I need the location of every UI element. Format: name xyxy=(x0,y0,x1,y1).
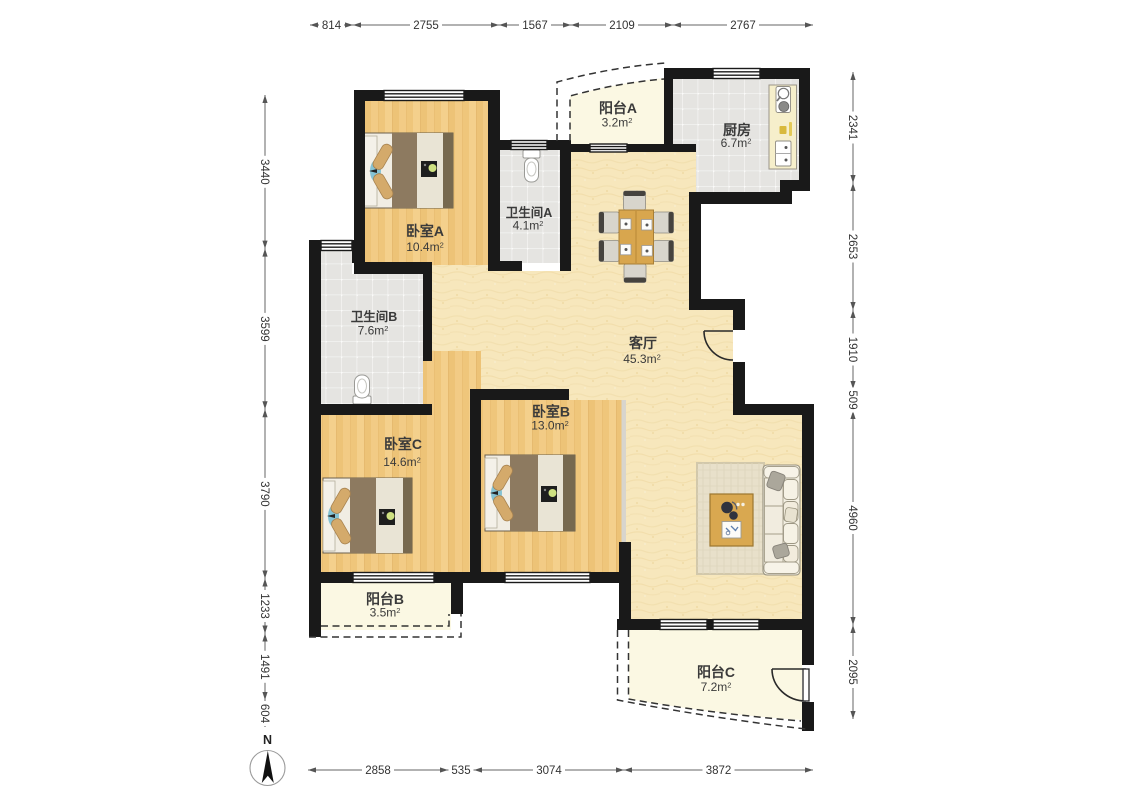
svg-text:535: 535 xyxy=(451,765,470,777)
svg-text:45.3m2: 45.3m2 xyxy=(623,352,661,366)
svg-text:2341: 2341 xyxy=(846,115,858,141)
svg-text:509: 509 xyxy=(846,390,858,409)
svg-text:13.0m2: 13.0m2 xyxy=(531,419,569,433)
svg-text:6.7m2: 6.7m2 xyxy=(721,136,752,150)
svg-text:2755: 2755 xyxy=(413,20,439,32)
svg-text:7.2m2: 7.2m2 xyxy=(701,680,732,694)
svg-text:阳台C: 阳台C xyxy=(697,664,735,680)
svg-text:客厅: 客厅 xyxy=(628,335,657,351)
svg-text:阳台A: 阳台A xyxy=(599,100,637,116)
svg-text:2095: 2095 xyxy=(846,659,858,685)
svg-text:1567: 1567 xyxy=(522,20,548,32)
svg-text:1233: 1233 xyxy=(258,593,270,619)
svg-text:2767: 2767 xyxy=(730,20,756,32)
svg-text:3790: 3790 xyxy=(258,481,270,507)
svg-text:卧室B: 卧室B xyxy=(532,404,570,420)
svg-text:3.5m2: 3.5m2 xyxy=(370,606,401,620)
svg-text:1491: 1491 xyxy=(258,654,270,680)
svg-text:4960: 4960 xyxy=(846,505,858,531)
svg-text:814: 814 xyxy=(322,20,342,32)
svg-text:3440: 3440 xyxy=(258,159,270,185)
svg-text:10.4m2: 10.4m2 xyxy=(406,240,444,254)
svg-text:4.1m2: 4.1m2 xyxy=(513,219,544,233)
svg-text:14.6m2: 14.6m2 xyxy=(383,455,421,469)
svg-text:3599: 3599 xyxy=(258,316,270,342)
svg-text:1910: 1910 xyxy=(846,337,858,363)
svg-text:3872: 3872 xyxy=(706,765,732,777)
svg-text:卧室C: 卧室C xyxy=(384,436,422,452)
svg-text:7.6m2: 7.6m2 xyxy=(358,324,389,338)
svg-text:2858: 2858 xyxy=(365,765,391,777)
svg-text:2109: 2109 xyxy=(609,20,635,32)
svg-text:N: N xyxy=(263,733,272,747)
svg-text:604: 604 xyxy=(258,704,270,724)
svg-text:3074: 3074 xyxy=(536,765,562,777)
svg-text:2653: 2653 xyxy=(846,234,858,260)
svg-text:3.2m2: 3.2m2 xyxy=(602,116,633,130)
svg-text:卫生间B: 卫生间B xyxy=(351,309,398,324)
svg-text:卧室A: 卧室A xyxy=(406,223,444,239)
